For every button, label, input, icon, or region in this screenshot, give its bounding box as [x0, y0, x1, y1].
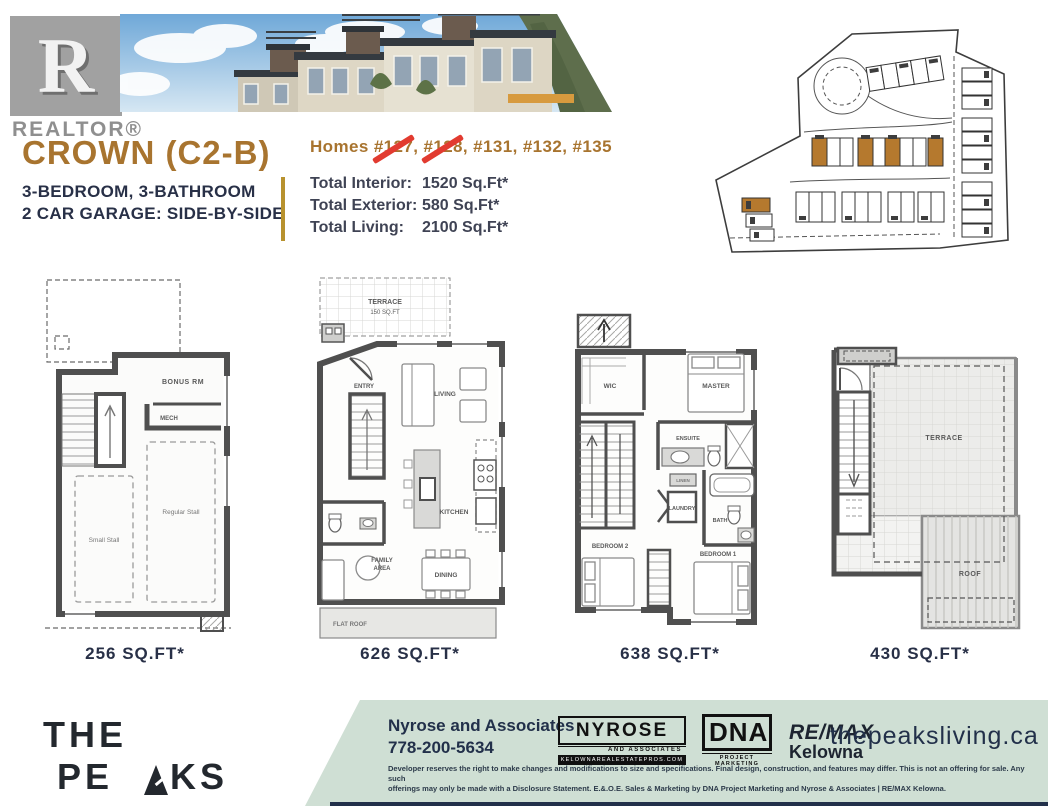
plan-bedrooms-area: 638 SQ.FT* [566, 644, 774, 664]
realtor-logo: R [10, 16, 122, 116]
plan-main-area: 626 SQ.FT* [302, 644, 518, 664]
plan-garage-area: 256 SQ.FT* [35, 644, 235, 664]
peaks-logo: THE PEKS — KELOWNA, BC — [28, 714, 228, 806]
label-bonus-rm: BONUS RM [162, 379, 204, 386]
floor-plan-main: TERRACE 150 SQ.FT ENTRY LIVING KITCHEN F… [302, 272, 518, 642]
total-living-row: Total Living:2100 Sq.Ft* [310, 217, 508, 239]
nyrose-logo: NYROSE AND ASSOCIATES KELOWNAREALESTATEP… [558, 716, 686, 765]
floor-plan-rooftop-svg: TERRACE ROOF [812, 340, 1028, 640]
home-number-127-crossed: #127 [374, 137, 413, 157]
label-kitchen: KITCHEN [440, 509, 469, 516]
label-family-1: FAMILY [371, 558, 392, 564]
label-flat-roof: FLAT ROOF [333, 622, 367, 628]
spec-garage: 2 CAR GARAGE: SIDE-BY-SIDE [22, 203, 284, 225]
gold-divider [281, 177, 285, 241]
label-bedroom2: BEDROOM 2 [592, 544, 629, 550]
bedroom2-bed [582, 558, 634, 606]
brochure-page: R REALTOR® [0, 0, 1048, 806]
floor-plan-bedrooms: WIC MASTER ENSUITE LINEN LAUNDRY BATH BE… [566, 310, 774, 640]
stairs [578, 422, 634, 528]
website-link[interactable]: thepeaksliving.ca [830, 722, 1039, 751]
home-number-128-crossed: #128 [423, 137, 462, 157]
dna-logo: DNA PROJECT MARKETING [702, 714, 772, 767]
home-number-132: #132 [523, 137, 562, 157]
label-wic: WIC [604, 383, 617, 390]
home-number-131: #131 [473, 137, 512, 157]
label-terrace-size: 150 SQ.FT [370, 310, 400, 316]
label-laundry: LAUNDRY [669, 506, 696, 512]
stair-header [838, 348, 896, 364]
plan-rooftop-area: 430 SQ.FT* [812, 644, 1028, 664]
label-family-2: AREA [373, 566, 391, 572]
agent-phone-link[interactable]: 778-200-5634 [388, 738, 574, 758]
agent-name: Nyrose and Associates [388, 716, 574, 736]
site-units-top [866, 56, 944, 91]
floor-plan-main-svg: TERRACE 150 SQ.FT ENTRY LIVING KITCHEN F… [302, 272, 518, 642]
label-master: MASTER [702, 383, 730, 390]
label-ensuite: ENSUITE [676, 436, 700, 442]
site-plan-map [700, 22, 1038, 262]
bedroom1-bed [694, 562, 750, 614]
site-units-right [962, 68, 992, 237]
footer-bottom-rule [330, 802, 1048, 806]
label-terrace: TERRACE [925, 435, 962, 442]
label-bedroom1: BEDROOM 1 [700, 552, 737, 558]
site-units-middle [812, 138, 943, 166]
homes-prefix: Homes [310, 137, 374, 157]
legal-disclaimer: Developer reserves the right to make cha… [388, 764, 1043, 794]
floor-plan-garage: BONUS RM MECH Small Stall Regular Stall [35, 276, 235, 638]
label-living: LIVING [434, 391, 456, 398]
stairs [350, 394, 384, 478]
mountain-icon [144, 765, 168, 795]
floor-plan-garage-svg: BONUS RM MECH Small Stall Regular Stall [35, 276, 235, 638]
center-closet [648, 550, 670, 606]
homes-list: Homes #127, #128, #131, #132, #135 [310, 137, 612, 157]
label-small-stall: Small Stall [89, 537, 120, 544]
spec-bed-bath: 3-BEDROOM, 3-BATHROOM [22, 181, 284, 203]
stairs-up [62, 394, 124, 466]
area-totals: Total Interior:1520 Sq.Ft* Total Exterio… [310, 173, 508, 239]
page-title: CROWN (C2-B) [22, 134, 270, 172]
townhomes-photo [120, 14, 612, 112]
home-number-135: #135 [573, 137, 612, 157]
label-dining: DINING [435, 572, 458, 579]
total-exterior-row: Total Exterior:580 Sq.Ft* [310, 195, 508, 217]
label-bath: BATH [713, 518, 728, 524]
floor-plan-bedrooms-svg: WIC MASTER ENSUITE LINEN LAUNDRY BATH BE… [566, 310, 774, 640]
peaks-wordmark: THE PEKS [28, 714, 228, 798]
label-terrace: TERRACE [368, 299, 402, 306]
unit-specs: 3-BEDROOM, 3-BATHROOM 2 CAR GARAGE: SIDE… [22, 181, 284, 225]
label-linen: LINEN [676, 478, 690, 483]
stairs-down [838, 392, 870, 534]
total-interior-row: Total Interior:1520 Sq.Ft* [310, 173, 508, 195]
roof-access [578, 315, 630, 347]
label-roof: ROOF [959, 571, 981, 578]
realtor-r-glyph: R [38, 27, 94, 105]
floor-plan-rooftop: TERRACE ROOF [812, 340, 1028, 640]
label-mech: MECH [160, 416, 178, 422]
agent-contact: Nyrose and Associates 778-200-5634 [388, 716, 574, 758]
label-regular-stall: Regular Stall [162, 509, 200, 516]
label-entry: ENTRY [354, 384, 374, 390]
